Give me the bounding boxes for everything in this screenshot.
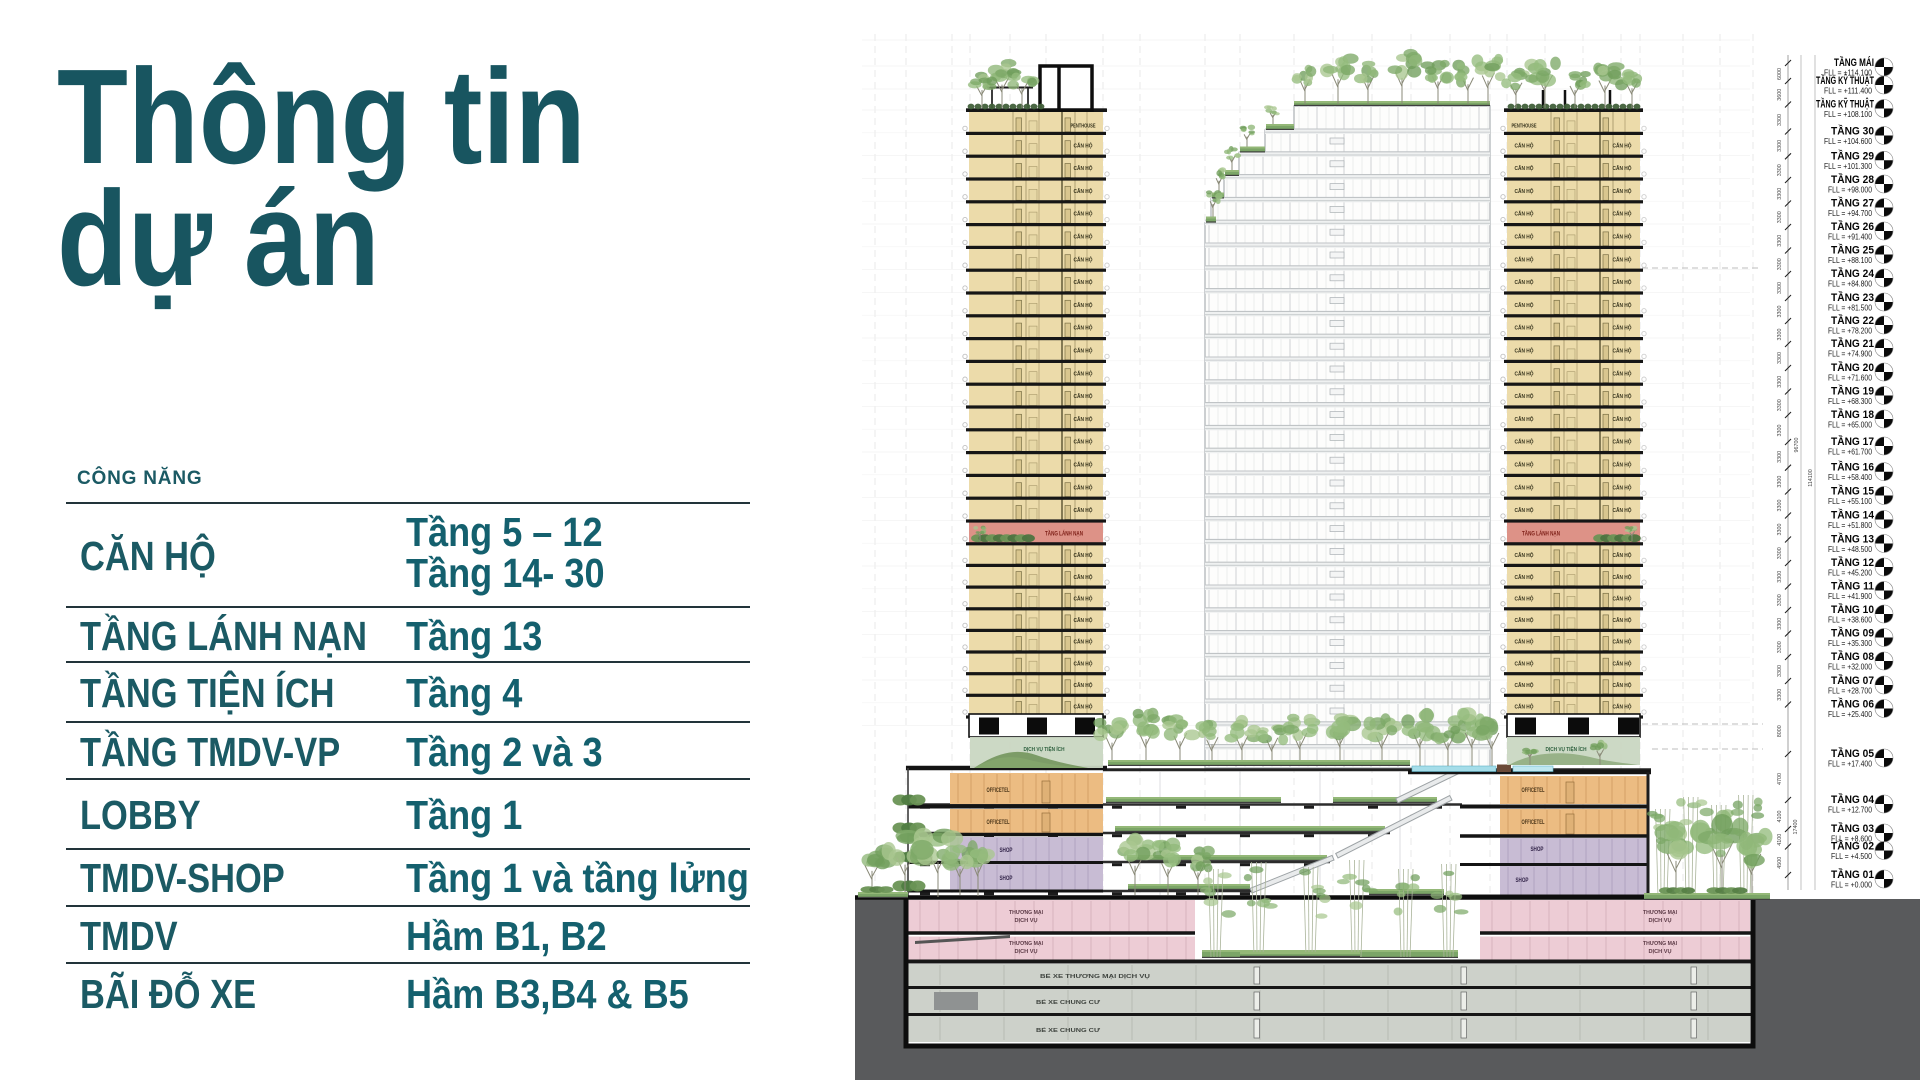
svg-text:TẦNG LÁNH NẠN: TẦNG LÁNH NẠN: [1045, 531, 1083, 538]
svg-text:TẦNG KỸ THUẬT: TẦNG KỸ THUẬT: [1816, 74, 1874, 87]
svg-text:CĂN HỘ: CĂN HỘ: [1613, 301, 1632, 309]
svg-text:FLL = +17.400: FLL = +17.400: [1828, 760, 1873, 769]
svg-text:TẦNG 29: TẦNG 29: [1831, 149, 1874, 162]
svg-text:DỊCH VỤ: DỊCH VỤ: [1015, 949, 1038, 955]
svg-text:TẦNG 27: TẦNG 27: [1831, 197, 1874, 210]
svg-text:96700: 96700: [1794, 438, 1800, 453]
svg-text:FLL = +48.500: FLL = +48.500: [1828, 545, 1873, 554]
svg-text:SHOP: SHOP: [1000, 876, 1013, 882]
svg-text:CĂN HỘ: CĂN HỘ: [1074, 616, 1093, 624]
svg-text:TẦNG 26: TẦNG 26: [1831, 220, 1874, 233]
svg-text:FLL = +25.400: FLL = +25.400: [1828, 710, 1873, 719]
svg-text:CĂN HỘ: CĂN HỘ: [1074, 483, 1093, 491]
svg-text:DỊCH VỤ: DỊCH VỤ: [1649, 949, 1672, 955]
svg-text:TẦNG 30: TẦNG 30: [1831, 125, 1874, 138]
svg-text:FLL = +101.300: FLL = +101.300: [1824, 162, 1873, 171]
svg-text:SHOP: SHOP: [1531, 847, 1544, 853]
svg-text:SHOP: SHOP: [1516, 878, 1529, 884]
svg-text:CĂN HỘ: CĂN HỘ: [1613, 551, 1632, 559]
svg-text:3300: 3300: [1777, 665, 1783, 677]
svg-text:FLL = +41.900: FLL = +41.900: [1828, 592, 1873, 601]
svg-text:CĂN HỘ: CĂN HỘ: [1074, 324, 1093, 332]
svg-text:CĂN HỘ: CĂN HỘ: [1613, 141, 1632, 149]
svg-text:CĂN HỘ: CĂN HỘ: [1515, 415, 1534, 423]
svg-text:3300: 3300: [1777, 476, 1783, 488]
svg-text:CĂN HỘ: CĂN HỘ: [1074, 438, 1093, 446]
svg-text:TẦNG 25: TẦNG 25: [1831, 244, 1874, 257]
svg-text:TẦNG 09: TẦNG 09: [1831, 627, 1874, 640]
svg-text:CĂN HỘ: CĂN HỘ: [1515, 483, 1534, 491]
svg-text:CĂN HỘ: CĂN HỘ: [1074, 595, 1093, 603]
svg-text:3300: 3300: [1777, 235, 1783, 247]
svg-text:TẦNG MÁI: TẦNG MÁI: [1834, 56, 1874, 69]
svg-text:BỂ XE CHUNG CƯ: BỂ XE CHUNG CƯ: [1036, 1027, 1100, 1034]
svg-text:CĂN HỘ: CĂN HỘ: [1515, 616, 1534, 624]
svg-text:TẦNG 10: TẦNG 10: [1831, 603, 1874, 616]
svg-text:CĂN HỘ: CĂN HỘ: [1613, 369, 1632, 377]
svg-text:DỊCH VỤ: DỊCH VỤ: [1015, 918, 1038, 924]
svg-text:TẦNG 11: TẦNG 11: [1831, 580, 1874, 593]
svg-text:CĂN HỘ: CĂN HỘ: [1613, 210, 1632, 218]
svg-text:CĂN HỘ: CĂN HỘ: [1074, 301, 1093, 309]
svg-text:6000: 6000: [1777, 68, 1783, 80]
svg-text:DỊCH VỤ TIỆN ÍCH: DỊCH VỤ TIỆN ÍCH: [1024, 745, 1065, 753]
svg-text:8000: 8000: [1777, 725, 1783, 737]
svg-text:CĂN HỘ: CĂN HỘ: [1074, 659, 1093, 667]
svg-text:PENTHOUSE: PENTHOUSE: [1071, 124, 1096, 130]
svg-text:3300: 3300: [1777, 282, 1783, 294]
svg-text:CĂN HỘ: CĂN HỘ: [1515, 324, 1534, 332]
svg-text:CĂN HỘ: CĂN HỘ: [1515, 278, 1534, 286]
svg-text:FLL = +68.300: FLL = +68.300: [1828, 397, 1873, 406]
svg-text:PENTHOUSE: PENTHOUSE: [1512, 124, 1537, 130]
svg-text:OFFICETEL: OFFICETEL: [1522, 788, 1545, 794]
svg-text:CĂN HỘ: CĂN HỘ: [1613, 255, 1632, 263]
svg-text:FLL = +55.100: FLL = +55.100: [1828, 497, 1873, 506]
svg-text:CĂN HỘ: CĂN HỘ: [1074, 461, 1093, 469]
svg-text:TẦNG 07: TẦNG 07: [1831, 674, 1874, 687]
svg-text:CĂN HỘ: CĂN HỘ: [1515, 703, 1534, 711]
svg-text:FLL = +61.700: FLL = +61.700: [1828, 448, 1873, 457]
svg-text:FLL = +104.600: FLL = +104.600: [1824, 137, 1873, 146]
svg-text:CĂN HỘ: CĂN HỘ: [1074, 415, 1093, 423]
svg-text:CĂN HỘ: CĂN HỘ: [1074, 164, 1093, 172]
svg-text:3300: 3300: [1777, 641, 1783, 653]
svg-text:TẦNG LÁNH NẠN: TẦNG LÁNH NẠN: [1522, 531, 1560, 538]
svg-text:CĂN HỘ: CĂN HỘ: [1515, 551, 1534, 559]
svg-text:3300: 3300: [1777, 376, 1783, 388]
svg-text:114100: 114100: [1808, 469, 1814, 487]
svg-text:3300: 3300: [1777, 594, 1783, 606]
svg-text:CĂN HỘ: CĂN HỘ: [1515, 369, 1534, 377]
svg-text:TẦNG 17: TẦNG 17: [1831, 435, 1874, 448]
svg-text:CĂN HỘ: CĂN HỘ: [1074, 141, 1093, 149]
svg-text:FLL = +32.000: FLL = +32.000: [1828, 663, 1873, 672]
svg-text:CĂN HỘ: CĂN HỘ: [1074, 681, 1093, 689]
svg-text:CĂN HỘ: CĂN HỘ: [1515, 659, 1534, 667]
svg-text:3300: 3300: [1777, 689, 1783, 701]
svg-text:3300: 3300: [1777, 329, 1783, 341]
svg-text:TẦNG 19: TẦNG 19: [1831, 385, 1874, 398]
svg-text:CĂN HỘ: CĂN HỘ: [1515, 461, 1534, 469]
svg-text:3300: 3300: [1777, 399, 1783, 411]
svg-text:FLL = +71.600: FLL = +71.600: [1828, 374, 1873, 383]
svg-text:4500: 4500: [1777, 857, 1783, 869]
svg-text:CĂN HỘ: CĂN HỘ: [1613, 506, 1632, 514]
svg-text:TẦNG 06: TẦNG 06: [1831, 698, 1874, 711]
svg-text:FLL = +94.700: FLL = +94.700: [1828, 209, 1873, 218]
svg-text:FLL = +12.700: FLL = +12.700: [1828, 806, 1873, 815]
svg-text:CĂN HỘ: CĂN HỘ: [1613, 438, 1632, 446]
svg-text:3300: 3300: [1777, 211, 1783, 223]
svg-text:CĂN HỘ: CĂN HỘ: [1613, 461, 1632, 469]
svg-text:TẦNG 23: TẦNG 23: [1831, 291, 1874, 304]
svg-text:FLL = +65.000: FLL = +65.000: [1828, 421, 1873, 430]
svg-text:CĂN HỘ: CĂN HỘ: [1613, 187, 1632, 195]
svg-text:4100: 4100: [1777, 811, 1783, 823]
svg-text:BỂ XE CHUNG CƯ: BỂ XE CHUNG CƯ: [1036, 999, 1100, 1006]
svg-text:CĂN HỘ: CĂN HỘ: [1613, 573, 1632, 581]
svg-text:CĂN HỘ: CĂN HỘ: [1074, 573, 1093, 581]
svg-text:17400: 17400: [1793, 820, 1799, 835]
svg-text:TẦNG 14: TẦNG 14: [1831, 509, 1875, 522]
svg-text:CĂN HỘ: CĂN HỘ: [1074, 392, 1093, 400]
svg-text:CĂN HỘ: CĂN HỘ: [1613, 392, 1632, 400]
svg-text:CĂN HỘ: CĂN HỘ: [1613, 233, 1632, 241]
svg-text:BỂ XE THƯƠNG MẠI DỊCH VỤ: BỂ XE THƯƠNG MẠI DỊCH VỤ: [1040, 973, 1150, 980]
svg-text:CĂN HỘ: CĂN HỘ: [1074, 347, 1093, 355]
svg-text:TẦNG 02: TẦNG 02: [1831, 840, 1874, 853]
svg-text:FLL = +58.400: FLL = +58.400: [1828, 473, 1873, 482]
svg-text:FLL = +81.500: FLL = +81.500: [1828, 304, 1873, 313]
svg-text:3300: 3300: [1777, 114, 1783, 126]
svg-text:FLL = +84.800: FLL = +84.800: [1828, 280, 1873, 289]
svg-text:CĂN HỘ: CĂN HỘ: [1074, 187, 1093, 195]
svg-text:TẦNG 18: TẦNG 18: [1831, 408, 1874, 421]
svg-text:FLL = +91.400: FLL = +91.400: [1828, 233, 1873, 242]
svg-text:CĂN HỘ: CĂN HỘ: [1613, 681, 1632, 689]
svg-text:CĂN HỘ: CĂN HỘ: [1515, 255, 1534, 263]
svg-text:CĂN HỘ: CĂN HỘ: [1613, 595, 1632, 603]
svg-text:FLL = +78.200: FLL = +78.200: [1828, 327, 1873, 336]
svg-text:CĂN HỘ: CĂN HỘ: [1515, 187, 1534, 195]
svg-text:3300: 3300: [1777, 425, 1783, 437]
svg-text:3300: 3300: [1777, 306, 1783, 318]
svg-text:CĂN HỘ: CĂN HỘ: [1074, 638, 1093, 646]
svg-text:3300: 3300: [1777, 258, 1783, 270]
svg-text:CĂN HỘ: CĂN HỘ: [1613, 324, 1632, 332]
svg-text:3300: 3300: [1777, 164, 1783, 176]
svg-text:3300: 3300: [1777, 451, 1783, 463]
svg-text:CĂN HỘ: CĂN HỘ: [1515, 347, 1534, 355]
svg-text:TẦNG KỸ THUẬT: TẦNG KỸ THUẬT: [1816, 98, 1874, 111]
svg-text:FLL = +0.000: FLL = +0.000: [1831, 881, 1873, 890]
svg-text:TẦNG 16: TẦNG 16: [1831, 461, 1874, 474]
svg-text:TẦNG 20: TẦNG 20: [1831, 361, 1874, 374]
svg-text:TẦNG 21: TẦNG 21: [1831, 337, 1874, 350]
svg-text:4700: 4700: [1777, 773, 1783, 785]
svg-text:CĂN HỘ: CĂN HỘ: [1613, 483, 1632, 491]
svg-text:3300: 3300: [1777, 547, 1783, 559]
svg-text:TẦNG 05: TẦNG 05: [1831, 747, 1874, 760]
svg-text:THƯƠNG MẠI: THƯƠNG MẠI: [1009, 941, 1044, 947]
svg-text:TẦNG 12: TẦNG 12: [1831, 556, 1874, 569]
svg-text:CĂN HỘ: CĂN HỘ: [1515, 681, 1534, 689]
svg-text:CĂN HỘ: CĂN HỘ: [1074, 278, 1093, 286]
svg-text:CĂN HỘ: CĂN HỘ: [1613, 659, 1632, 667]
svg-text:TẦNG 03: TẦNG 03: [1831, 822, 1874, 835]
svg-text:FLL = +74.900: FLL = +74.900: [1828, 350, 1873, 359]
svg-text:CĂN HỘ: CĂN HỘ: [1074, 210, 1093, 218]
svg-text:TẦNG 15: TẦNG 15: [1831, 485, 1874, 498]
svg-text:TẦNG 01: TẦNG 01: [1831, 868, 1874, 881]
svg-text:FLL = +4.500: FLL = +4.500: [1831, 852, 1873, 861]
svg-text:CĂN HỘ: CĂN HỘ: [1515, 301, 1534, 309]
svg-text:CĂN HỘ: CĂN HỘ: [1074, 369, 1093, 377]
svg-text:FLL = +111.400: FLL = +111.400: [1824, 87, 1873, 96]
svg-text:CĂN HỘ: CĂN HỘ: [1613, 278, 1632, 286]
svg-text:CĂN HỘ: CĂN HỘ: [1515, 233, 1534, 241]
svg-text:CĂN HỘ: CĂN HỘ: [1613, 415, 1632, 423]
svg-text:CĂN HỘ: CĂN HỘ: [1613, 164, 1632, 172]
svg-text:CĂN HỘ: CĂN HỘ: [1515, 595, 1534, 603]
svg-text:3300: 3300: [1777, 352, 1783, 364]
svg-text:CĂN HỘ: CĂN HỘ: [1613, 703, 1632, 711]
svg-text:CĂN HỘ: CĂN HỘ: [1613, 347, 1632, 355]
svg-text:THƯƠNG MẠI: THƯƠNG MẠI: [1009, 910, 1044, 916]
svg-text:FLL = +35.300: FLL = +35.300: [1828, 639, 1873, 648]
svg-text:CĂN HỘ: CĂN HỘ: [1515, 506, 1534, 514]
svg-text:CĂN HỘ: CĂN HỘ: [1515, 141, 1534, 149]
svg-text:CĂN HỘ: CĂN HỘ: [1074, 551, 1093, 559]
svg-text:CĂN HỘ: CĂN HỘ: [1074, 255, 1093, 263]
svg-text:3300: 3300: [1777, 524, 1783, 536]
svg-text:CĂN HỘ: CĂN HỘ: [1074, 233, 1093, 241]
svg-text:CĂN HỘ: CĂN HỘ: [1613, 616, 1632, 624]
svg-text:OFFICETEL: OFFICETEL: [1522, 820, 1545, 826]
svg-text:OFFICETEL: OFFICETEL: [987, 820, 1010, 826]
svg-text:FLL = +51.800: FLL = +51.800: [1828, 521, 1873, 530]
svg-text:DỊCH VỤ: DỊCH VỤ: [1649, 918, 1672, 924]
svg-text:CĂN HỘ: CĂN HỘ: [1515, 438, 1534, 446]
svg-text:THƯƠNG MẠI: THƯƠNG MẠI: [1643, 941, 1678, 947]
svg-text:CĂN HỘ: CĂN HỘ: [1515, 392, 1534, 400]
svg-text:CĂN HỘ: CĂN HỘ: [1515, 164, 1534, 172]
svg-text:3300: 3300: [1777, 571, 1783, 583]
svg-text:THƯƠNG MẠI: THƯƠNG MẠI: [1643, 910, 1678, 916]
svg-text:SHOP: SHOP: [1000, 848, 1013, 854]
svg-text:CĂN HỘ: CĂN HỘ: [1515, 210, 1534, 218]
svg-text:3300: 3300: [1777, 618, 1783, 630]
svg-text:FLL = +98.000: FLL = +98.000: [1828, 186, 1873, 195]
svg-text:FLL = +108.100: FLL = +108.100: [1824, 110, 1873, 119]
svg-text:FLL = +45.200: FLL = +45.200: [1828, 569, 1873, 578]
svg-text:CĂN HỘ: CĂN HỘ: [1515, 638, 1534, 646]
svg-text:4100: 4100: [1777, 834, 1783, 846]
svg-text:FLL = +28.700: FLL = +28.700: [1828, 687, 1873, 696]
svg-text:TẦNG 24: TẦNG 24: [1831, 267, 1875, 280]
svg-text:CĂN HỘ: CĂN HỘ: [1613, 638, 1632, 646]
svg-text:TẦNG 08: TẦNG 08: [1831, 650, 1874, 663]
svg-text:CĂN HỘ: CĂN HỘ: [1074, 506, 1093, 514]
svg-text:3600: 3600: [1777, 89, 1783, 101]
svg-text:TẦNG 13: TẦNG 13: [1831, 533, 1874, 546]
svg-text:OFFICETEL: OFFICETEL: [987, 788, 1010, 794]
svg-text:FLL = +38.600: FLL = +38.600: [1828, 616, 1873, 625]
svg-text:TẦNG 22: TẦNG 22: [1831, 314, 1874, 327]
svg-text:3300: 3300: [1777, 140, 1783, 152]
svg-text:3300: 3300: [1777, 188, 1783, 200]
svg-text:DỊCH VỤ TIỆN ÍCH: DỊCH VỤ TIỆN ÍCH: [1546, 745, 1587, 753]
svg-text:CĂN HỘ: CĂN HỘ: [1074, 703, 1093, 711]
svg-text:FLL = +88.100: FLL = +88.100: [1828, 256, 1873, 265]
svg-text:CĂN HỘ: CĂN HỘ: [1515, 573, 1534, 581]
svg-text:3300: 3300: [1777, 500, 1783, 512]
svg-text:TẦNG 04: TẦNG 04: [1831, 793, 1875, 806]
svg-text:TẦNG 28: TẦNG 28: [1831, 173, 1874, 186]
